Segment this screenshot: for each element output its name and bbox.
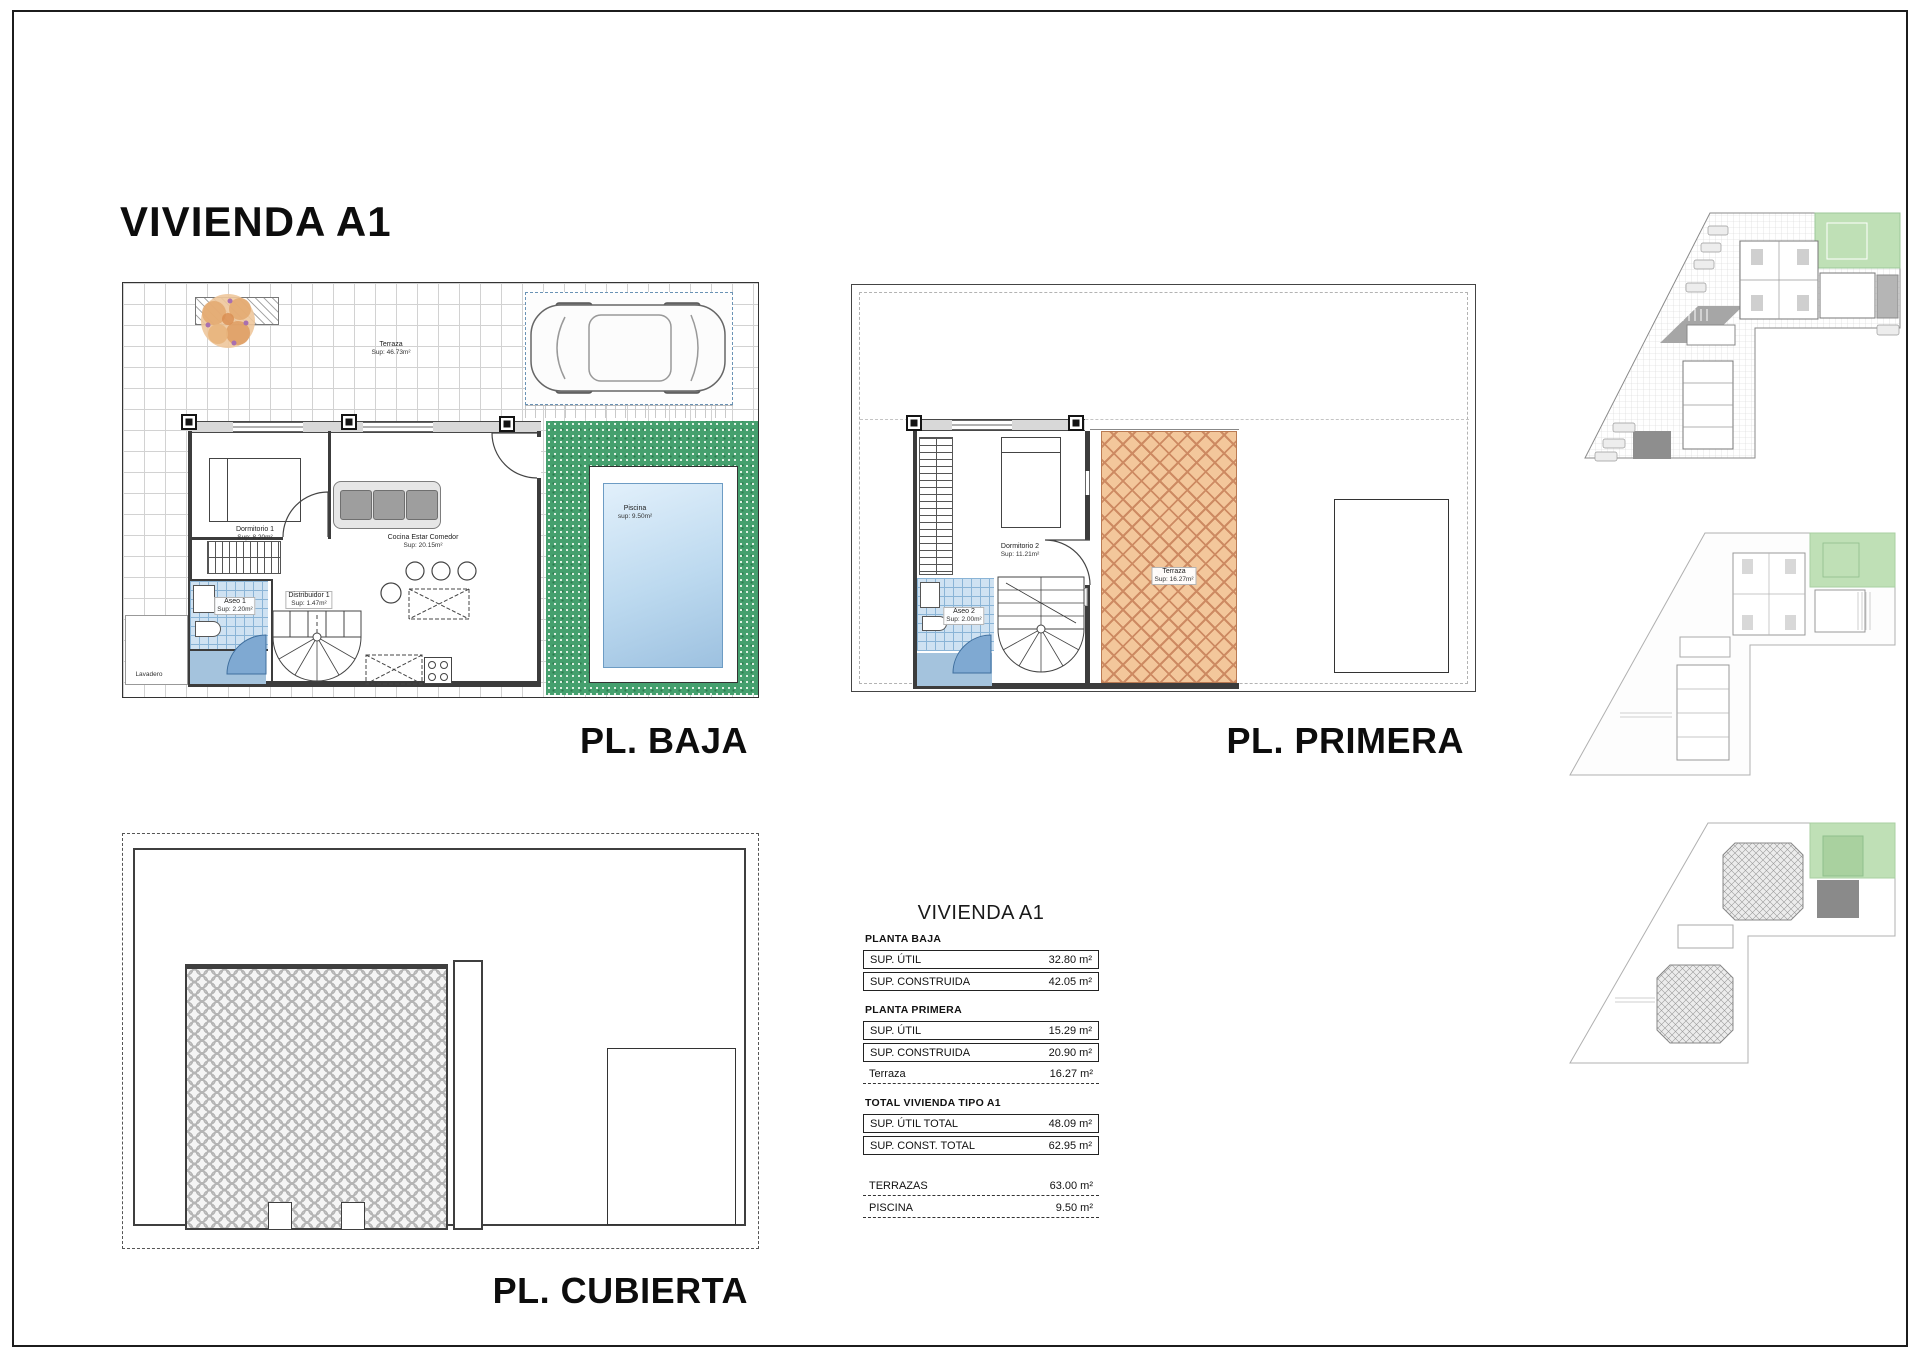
- hatched-roof: [1723, 843, 1803, 920]
- table-section: TERRAZAS63.00 m²PISCINA9.50 m²: [863, 1177, 1099, 1218]
- table-section: TOTAL VIVIENDA TIPO A1SUP. ÚTIL TOTAL48.…: [863, 1097, 1099, 1155]
- table-row: SUP. CONSTRUIDA42.05 m²: [863, 972, 1099, 991]
- row-value: 9.50 m²: [1056, 1202, 1093, 1214]
- table-row: SUP. ÚTIL TOTAL48.09 m²: [863, 1114, 1099, 1133]
- caption-roof: PL. CUBIERTA: [458, 1270, 748, 1312]
- table-section: PLANTA PRIMERASUP. ÚTIL15.29 m²SUP. CONS…: [863, 1004, 1099, 1084]
- plan-sheet: VIVIENDA A1 Terraza Sup: 46.73m² Piscina…: [0, 0, 1920, 1357]
- dark-roof-block: [1817, 880, 1859, 918]
- table-row: Terraza16.27 m²: [863, 1065, 1099, 1084]
- key-plan-ground: [1565, 203, 1905, 465]
- bed: [1001, 437, 1061, 528]
- table-row: TERRAZAS63.00 m²: [863, 1177, 1099, 1196]
- laundry-label: Lavadero: [135, 671, 162, 678]
- wall-right: [1085, 431, 1090, 471]
- key-plan-first: [1560, 525, 1900, 780]
- row-value: 20.90 m²: [1049, 1047, 1092, 1059]
- table-section-heading: PLANTA PRIMERA: [865, 1004, 1099, 1016]
- hall2-label: Distribuidor 2 Sup: 2.08m²: [1040, 588, 1087, 606]
- bedroom2-label: Dormitorio 2 Sup: 11.21m²: [1001, 543, 1040, 559]
- roof-chimney: [268, 1202, 292, 1229]
- parking-space: [525, 292, 733, 405]
- table-row: SUP. ÚTIL32.80 m²: [863, 950, 1099, 969]
- hall1-label: Distribuidor 1 Sup: 1.47m²: [285, 591, 332, 609]
- page-title: VIVIENDA A1: [120, 198, 392, 246]
- kitchen-living-label: Cocina Estar Comedor Sup: 20.15m²: [388, 534, 459, 550]
- terrace-top-line: [1090, 429, 1239, 430]
- roof-tiled-block: [185, 964, 448, 1230]
- column: [1068, 415, 1084, 431]
- table-section-heading: TOTAL VIVIENDA TIPO A1: [865, 1097, 1099, 1109]
- bathroom2-label: Aseo 2 Sup: 2.00m²: [943, 607, 984, 625]
- highlighted-unit: [1815, 213, 1900, 268]
- table-section: PLANTA BAJASUP. ÚTIL32.80 m²SUP. CONSTRU…: [863, 933, 1099, 991]
- hatched-roof: [1657, 965, 1733, 1043]
- partition: [271, 581, 273, 687]
- caption-ground-floor: PL. BAJA: [470, 720, 748, 762]
- toilet: [195, 621, 221, 637]
- area-summary-table: VIVIENDA A1 PLANTA BAJASUP. ÚTIL32.80 m²…: [863, 902, 1099, 1221]
- table-row: SUP. CONSTRUIDA20.90 m²: [863, 1043, 1099, 1062]
- window: [363, 422, 433, 432]
- row-label: PISCINA: [869, 1202, 913, 1214]
- shower2: [917, 653, 992, 686]
- shower1: [190, 651, 266, 684]
- column: [341, 414, 357, 430]
- row-label: SUP. CONSTRUIDA: [870, 1047, 970, 1059]
- roof-chimney: [341, 1202, 365, 1229]
- row-label: SUP. ÚTIL: [870, 954, 921, 966]
- row-value: 42.05 m²: [1049, 976, 1092, 988]
- row-value: 32.80 m²: [1049, 954, 1092, 966]
- row-value: 16.27 m²: [1050, 1068, 1093, 1080]
- washbasin: [193, 585, 215, 613]
- bed: [209, 458, 301, 522]
- row-label: SUP. ÚTIL TOTAL: [870, 1118, 958, 1130]
- pool-label: Piscina sup: 9.50m²: [618, 505, 652, 521]
- terrace-floor: [1101, 431, 1237, 683]
- floor-plan-first: Dormitorio 2 Sup: 11.21m² Aseo 2 Sup: 2.…: [851, 284, 1476, 692]
- row-label: SUP. ÚTIL: [870, 1025, 921, 1037]
- table-section-heading: PLANTA BAJA: [865, 933, 1099, 945]
- row-value: 48.09 m²: [1049, 1118, 1092, 1130]
- pool-void-outline: [607, 1048, 736, 1225]
- floor-plan-ground: Terraza Sup: 46.73m² Piscina sup: 9.50m²: [122, 282, 759, 698]
- paving-strip: [525, 405, 733, 418]
- washbasin: [920, 582, 940, 608]
- window: [1085, 471, 1090, 495]
- wall-right: [1085, 495, 1090, 540]
- summary-table-body: PLANTA BAJASUP. ÚTIL32.80 m²SUP. CONSTRU…: [863, 933, 1099, 1218]
- column: [499, 416, 515, 432]
- wall-right: [537, 431, 541, 437]
- sofa: [333, 481, 441, 529]
- table-row: PISCINA9.50 m²: [863, 1199, 1099, 1218]
- table-row: SUP. ÚTIL15.29 m²: [863, 1021, 1099, 1040]
- column: [181, 414, 197, 430]
- key-plan-roof: [1560, 818, 1900, 1076]
- roof-plan: [122, 833, 759, 1249]
- wardrobe: [207, 541, 281, 574]
- column: [906, 415, 922, 431]
- planter: [195, 297, 279, 325]
- terrace-label: Terraza Sup: 46.73m²: [371, 341, 410, 357]
- door-arcs: [1045, 540, 1090, 585]
- bathroom1-label: Aseo 1 Sup: 2.20m²: [214, 597, 255, 615]
- caption-first-floor: PL. PRIMERA: [1180, 720, 1464, 762]
- row-label: Terraza: [869, 1068, 906, 1080]
- pool-void-outline: [1334, 499, 1449, 673]
- bedroom1-label: Dormitorio 1 Sup: 8.20m²: [236, 526, 274, 542]
- row-value: 62.95 m²: [1049, 1140, 1092, 1152]
- stove: [424, 657, 452, 684]
- wall-right: [537, 478, 541, 687]
- partition-bedroom: [328, 431, 331, 539]
- wardrobe: [919, 437, 953, 575]
- table-row: SUP. CONST. TOTAL62.95 m²: [863, 1136, 1099, 1155]
- row-value: 15.29 m²: [1049, 1025, 1092, 1037]
- window: [233, 422, 303, 432]
- row-label: SUP. CONST. TOTAL: [870, 1140, 975, 1152]
- row-value: 63.00 m²: [1050, 1180, 1093, 1192]
- table-title: VIVIENDA A1: [863, 902, 1099, 925]
- row-label: TERRAZAS: [869, 1180, 928, 1192]
- terrace-label: Terraza Sup: 16.27m²: [1151, 567, 1196, 585]
- window: [952, 420, 1012, 430]
- row-label: SUP. CONSTRUIDA: [870, 976, 970, 988]
- stair-shaft: [453, 960, 483, 1230]
